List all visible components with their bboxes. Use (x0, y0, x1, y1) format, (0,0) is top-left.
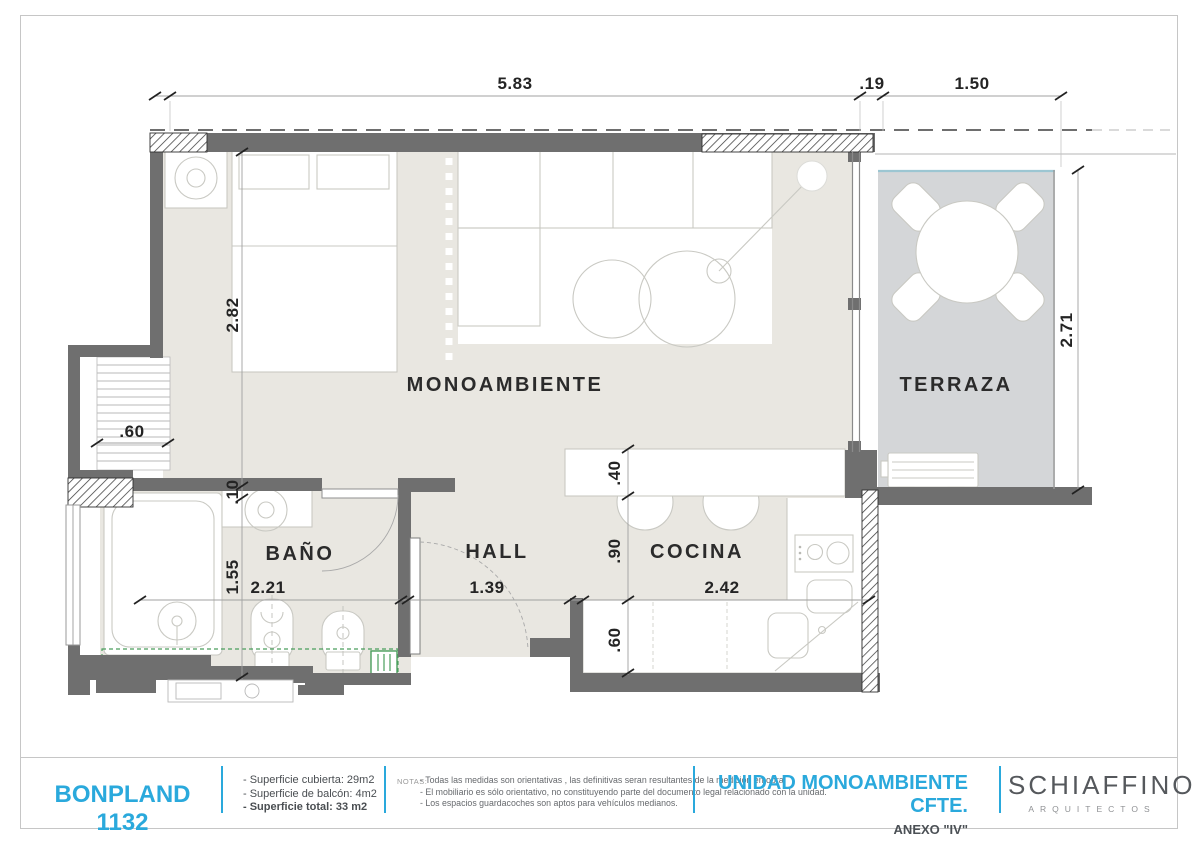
project-title: BONPLAND 1132 (45, 781, 200, 837)
footer-separator-bar (693, 766, 695, 813)
area-covered: - Superficie cubierta: 29m2 (243, 774, 377, 788)
studio-logo: SCHIAFFINO ARQUITECTOS (1008, 770, 1176, 814)
area-balcony: - Superficie de balcón: 4m2 (243, 788, 377, 802)
area-total: - Superficie total: 33 m2 (243, 801, 377, 815)
surface-areas: - Superficie cubierta: 29m2 - Superficie… (243, 774, 377, 815)
studio-subtitle: ARQUITECTOS (1008, 804, 1176, 814)
footer-separator-bar (999, 766, 1001, 813)
unit-title-block: UNIDAD MONOAMBIENTE CFTE. ANEXO "IV" (700, 772, 968, 837)
footer-divider (21, 757, 1177, 758)
footer-separator-bar (221, 766, 223, 813)
footer-separator-bar (384, 766, 386, 813)
plan-sheet: 5.83 .19 1.50 2.82 .10 1.55 .60 2.21 1.3… (0, 0, 1200, 849)
annex-label: ANEXO "IV" (700, 822, 968, 837)
studio-name: SCHIAFFINO (1008, 770, 1176, 801)
sheet-border (20, 15, 1178, 829)
unit-title: UNIDAD MONOAMBIENTE CFTE. (700, 772, 968, 818)
